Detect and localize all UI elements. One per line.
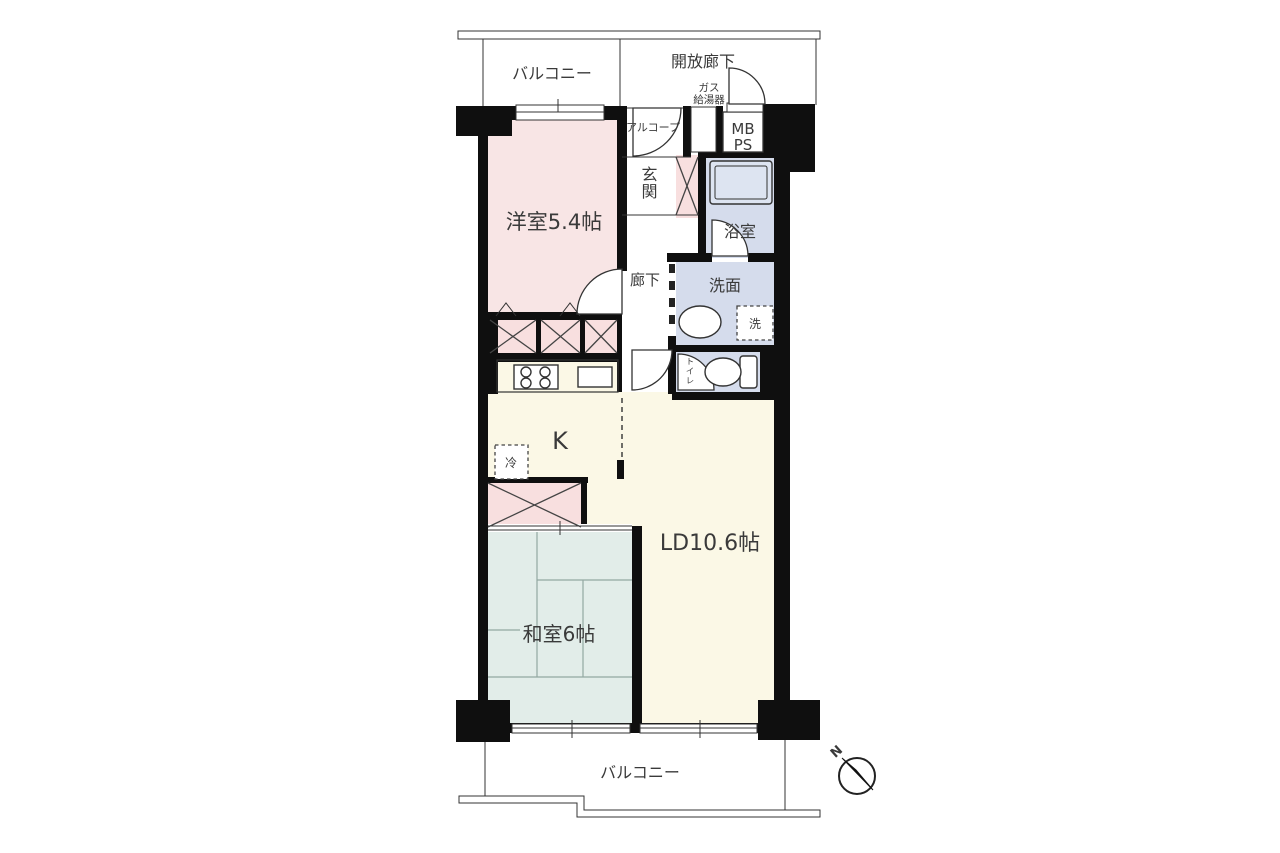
alcove-label: アルコープ	[626, 121, 680, 134]
balcony-bottom-edge	[459, 796, 820, 817]
gas-heater-label-line1: ガス	[699, 82, 720, 94]
corridor-label: 廊下	[630, 271, 660, 289]
kitchen-sink	[578, 367, 612, 387]
wall-closet-passage	[581, 483, 587, 527]
wall-closet-bottom	[488, 353, 622, 362]
wall-toilet-right	[760, 352, 776, 394]
pillar-top-right-step	[786, 134, 815, 172]
pillar-bottom-left	[456, 700, 510, 742]
washroom-label: 洗面	[709, 276, 741, 295]
gas-heater-box	[691, 107, 716, 152]
wall-japanese-ld	[632, 526, 642, 723]
floor-plan-canvas: バルコニー 開放廊下 ガス 給湯器	[0, 0, 1280, 853]
wall-bath-bottom-left	[667, 253, 712, 262]
living-dining-floor	[622, 392, 790, 723]
washroom-track-mark2	[669, 281, 675, 290]
balcony-top-label: バルコニー	[512, 64, 592, 83]
pillar-bottom-right	[758, 700, 820, 740]
balcony-bottom: バルコニー	[459, 740, 820, 817]
washroom-track-mark3	[669, 298, 675, 307]
western-room-label: 洋室5.4帖	[506, 210, 602, 234]
wall-left	[478, 106, 488, 736]
mbps-door-arc	[729, 68, 765, 104]
wall-gas-mbps	[716, 106, 723, 157]
balcony-top-rail	[458, 31, 820, 39]
closet-divider-1	[536, 318, 541, 354]
bathroom-label: 浴室	[724, 222, 756, 241]
wall-kld-stub	[617, 460, 624, 479]
refrigerator-label: 冷	[505, 456, 517, 470]
wall-bath-bottom-right	[748, 253, 776, 262]
balcony-top: バルコニー 開放廊下 ガス 給湯器	[458, 31, 820, 107]
washer-label: 洗	[749, 317, 761, 331]
wall-ld-top	[672, 392, 790, 400]
japanese-room-label: 和室6帖	[523, 622, 596, 646]
compass-circle	[839, 758, 875, 794]
washroom-track-mark4	[669, 315, 675, 324]
gas-heater-label-line2: 給湯器	[693, 93, 725, 106]
closet-divider-2	[580, 318, 585, 354]
stove	[514, 365, 558, 389]
kitchen-label: K	[552, 427, 569, 455]
pipe-space-label: PS	[734, 136, 753, 154]
bathtub	[710, 161, 772, 204]
toilet-label: トイレ	[684, 357, 694, 386]
toilet-bowl	[705, 358, 741, 386]
living-dining-label: LD10.6帖	[660, 531, 760, 556]
entrance-label: 玄関	[639, 166, 658, 200]
corridor-ld-door-arc	[632, 350, 672, 390]
floor-plan-page: バルコニー 開放廊下 ガス 給湯器	[0, 0, 1280, 853]
wall-washroom-bottom	[676, 345, 776, 352]
toilet-tank	[740, 356, 757, 388]
wall-genkan-bath	[698, 152, 706, 262]
wall-alcove-gas	[683, 106, 691, 157]
open-corridor-label: 開放廊下	[671, 52, 735, 71]
compass: N	[828, 743, 875, 794]
wall-right	[774, 140, 790, 730]
balcony-bottom-label: バルコニー	[600, 763, 680, 782]
washbasin	[679, 306, 721, 338]
washroom-track-mark1	[669, 264, 675, 273]
